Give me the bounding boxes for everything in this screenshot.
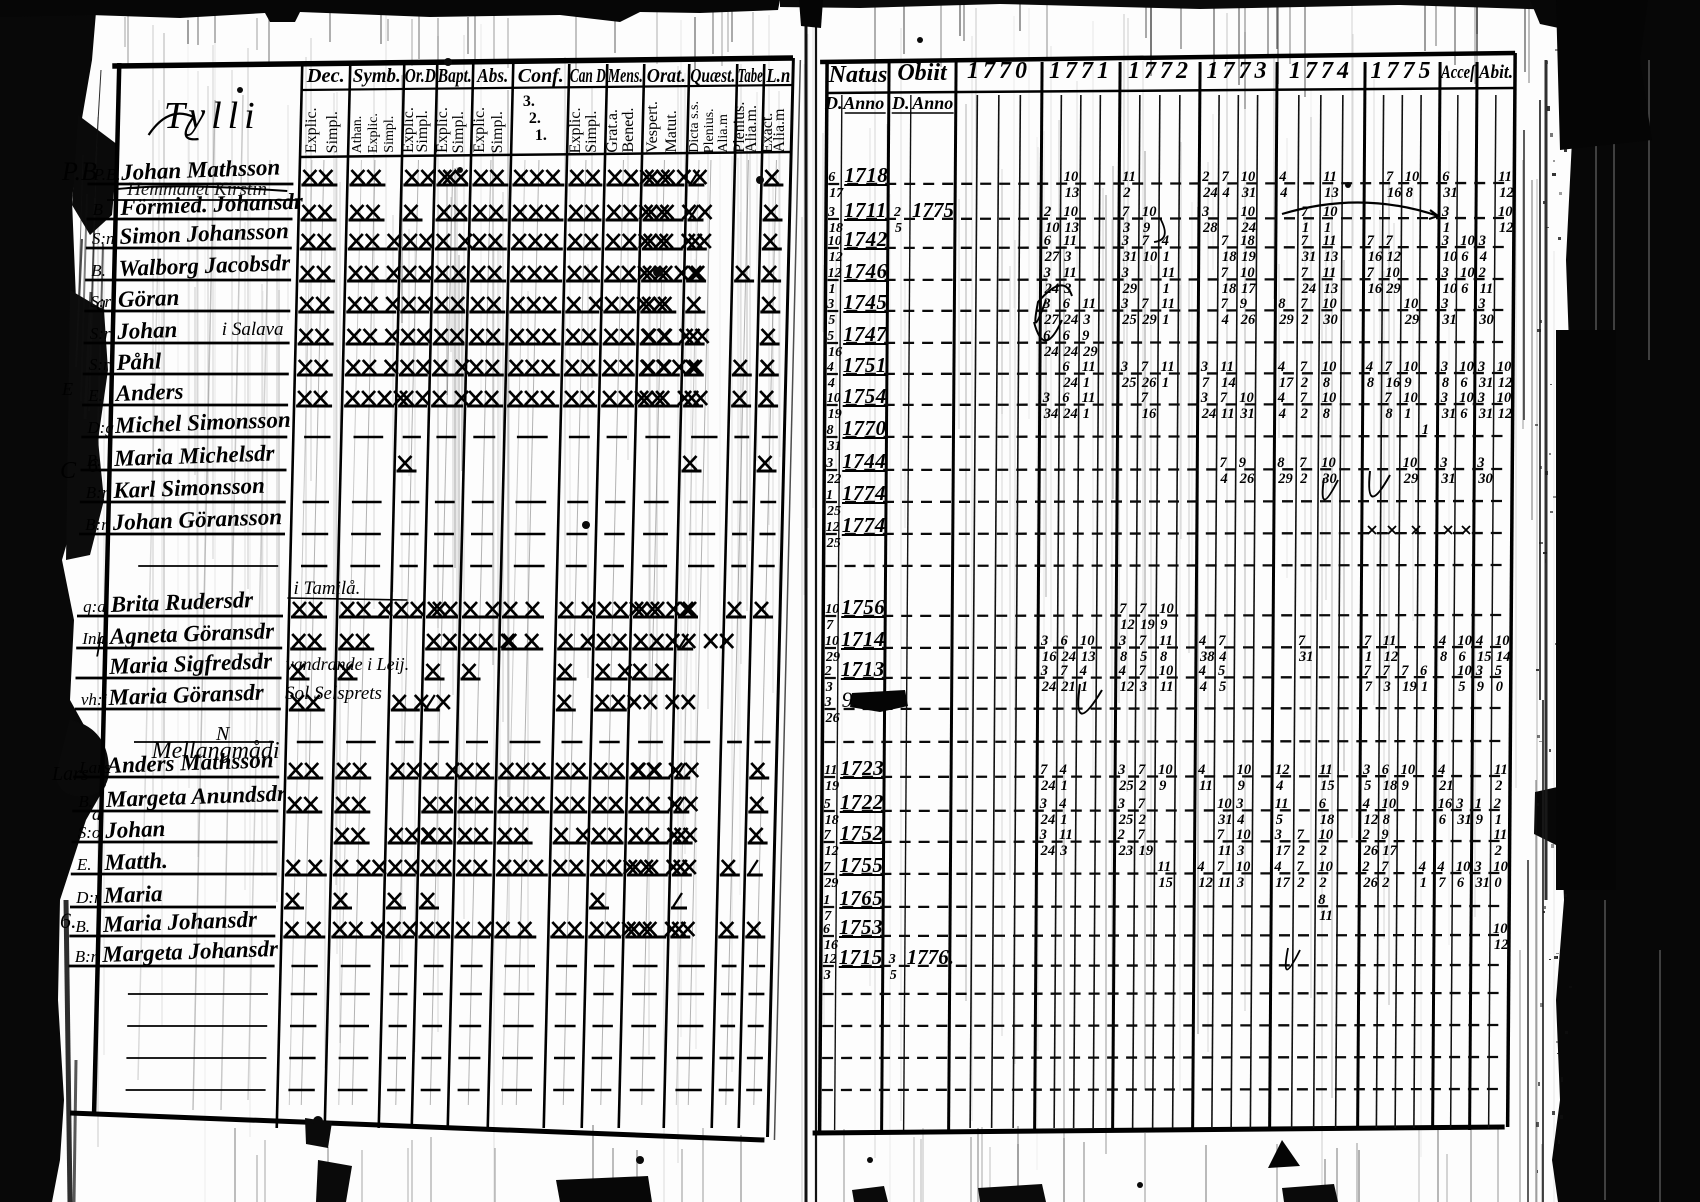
svg-text:Dec.: Dec. [306,65,345,87]
svg-text:15: 15 [1158,875,1173,891]
svg-text:4: 4 [1059,762,1067,778]
svg-text:1: 1 [826,488,833,503]
svg-text:10: 10 [1495,633,1510,649]
svg-text:1: 1 [1061,778,1068,794]
svg-text:10: 10 [1460,265,1475,281]
svg-text:6: 6 [1062,359,1070,375]
svg-text:16: 16 [1368,281,1383,297]
svg-text:26: 26 [1141,375,1157,391]
svg-text:5: 5 [828,313,835,328]
svg-text:17: 17 [1275,875,1290,891]
svg-text:17: 17 [1241,281,1256,297]
svg-text:3: 3 [1475,663,1483,679]
svg-text:7: 7 [1220,455,1228,471]
svg-text:Matth.: Matth. [103,848,168,875]
svg-text:Acceſ: Acceſ [1440,62,1476,83]
svg-text:18: 18 [1383,778,1398,794]
svg-text:1747: 1747 [843,322,888,346]
svg-text:7: 7 [1438,875,1446,891]
svg-text:3: 3 [1235,796,1243,812]
svg-text:1: 1 [1421,679,1428,695]
svg-text:7: 7 [1141,359,1149,375]
svg-text:9: 9 [1404,375,1411,391]
svg-text:16: 16 [1368,249,1383,265]
svg-text:17: 17 [1279,375,1294,391]
svg-text:3: 3 [1039,827,1047,843]
svg-text:16: 16 [1438,796,1453,812]
svg-text:Anno: Anno [842,93,884,113]
svg-text:12: 12 [1120,679,1135,695]
svg-text:27: 27 [1043,312,1059,328]
svg-text:11: 11 [1199,778,1213,794]
svg-text:1770: 1770 [967,58,1031,84]
svg-text:B: B [93,200,104,219]
svg-text:5: 5 [1495,663,1502,679]
svg-text:11: 11 [1275,796,1289,812]
svg-text:Simpl.: Simpl. [324,111,341,153]
svg-text:3: 3 [1118,633,1126,649]
svg-text:3: 3 [1040,633,1048,649]
svg-text:10: 10 [1236,859,1251,875]
svg-text:Athan.: Athan. [350,116,365,154]
svg-text:11: 11 [1063,265,1077,281]
svg-text:8: 8 [1367,375,1375,391]
svg-text:27: 27 [1044,249,1060,265]
svg-text:9: 9 [1381,827,1388,843]
svg-text:D:r: D:r [75,888,101,907]
svg-text:6.: 6. [88,455,103,477]
svg-text:4: 4 [1365,359,1373,375]
svg-text:4: 4 [1273,859,1281,875]
svg-text:6: 6 [1460,375,1468,391]
svg-text:19: 19 [825,779,839,794]
svg-text:2: 2 [1297,843,1305,859]
svg-text:16: 16 [828,345,842,360]
svg-text:9: 9 [1402,778,1409,794]
svg-text:11: 11 [1218,875,1232,891]
svg-text:Johan: Johan [104,816,166,843]
svg-text:29: 29 [1385,281,1401,297]
svg-text:7: 7 [1119,601,1127,617]
svg-text:17: 17 [1382,843,1397,859]
svg-text:N: N [215,723,231,745]
svg-text:11: 11 [1383,633,1397,649]
svg-text:18: 18 [1320,812,1335,828]
svg-text:29: 29 [1082,344,1098,360]
svg-text:i Salava: i Salava [222,319,284,340]
svg-text:11: 11 [1218,843,1232,859]
svg-text:2: 2 [1362,827,1370,843]
svg-text:7: 7 [1060,663,1068,679]
svg-text:15: 15 [1320,778,1335,794]
svg-text:10: 10 [1493,921,1508,937]
svg-text:3: 3 [1441,233,1449,249]
svg-text:3: 3 [1063,249,1071,265]
svg-text:B:n: B:n [75,947,100,966]
svg-text:26: 26 [1240,312,1256,328]
svg-text:1744: 1744 [842,449,886,473]
svg-text:10: 10 [1403,359,1418,375]
svg-text:8: 8 [1278,296,1286,312]
svg-text:17: 17 [829,186,844,201]
svg-text:B:r: B:r [85,515,108,534]
svg-text:Alia.m: Alia.m [716,114,731,153]
svg-text:10: 10 [1458,633,1473,649]
svg-text:10: 10 [1322,359,1337,375]
svg-text:10: 10 [1401,762,1416,778]
svg-text:1775: 1775 [1371,58,1435,84]
svg-text:29: 29 [1122,281,1138,297]
svg-text:Alia.m.: Alia.m. [743,105,760,153]
svg-text:4: 4 [1058,796,1066,812]
svg-text:7: 7 [1220,390,1228,406]
svg-text:Explic.: Explic. [434,107,451,153]
svg-text:16: 16 [824,938,838,953]
svg-text:29: 29 [1277,471,1293,487]
svg-text:6: 6 [1457,875,1465,891]
svg-text:24: 24 [1062,406,1078,422]
svg-text:7: 7 [1138,762,1146,778]
svg-text:24: 24 [1041,679,1057,695]
svg-text:7: 7 [1217,827,1225,843]
svg-text:1: 1 [1495,812,1502,828]
svg-text:2: 2 [1478,265,1486,281]
svg-text:7: 7 [1301,233,1309,249]
svg-text:7: 7 [1301,204,1309,220]
svg-text:10: 10 [1404,296,1419,312]
svg-text:S:r: S:r [90,324,111,343]
svg-text:Simpl.: Simpl. [382,116,397,153]
svg-text:3: 3 [1082,312,1090,328]
svg-text:11: 11 [1498,169,1512,185]
svg-text:3: 3 [1440,359,1448,375]
svg-text:25: 25 [1121,312,1137,328]
svg-text:1: 1 [1163,281,1170,297]
svg-text:3: 3 [1039,796,1047,812]
svg-text:30: 30 [1322,312,1338,328]
svg-text:3: 3 [1120,296,1128,312]
svg-text:12: 12 [1498,406,1513,422]
svg-text:1: 1 [829,282,836,297]
svg-text:3: 3 [1476,455,1484,471]
svg-text:Lars: Lars [51,763,89,785]
svg-text:7: 7 [1299,455,1307,471]
svg-text:Natus: Natus [828,62,888,88]
svg-text:Anders: Anders [113,379,184,406]
svg-text:3: 3 [1473,859,1481,875]
svg-text:Plenius.: Plenius. [702,108,717,153]
svg-text:8: 8 [1277,455,1285,471]
svg-text:12: 12 [826,520,840,535]
svg-text:24: 24 [1040,843,1056,859]
svg-text:18: 18 [825,813,839,828]
svg-text:29: 29 [1278,312,1294,328]
svg-text:31: 31 [1478,406,1494,422]
svg-text:31: 31 [1441,312,1457,328]
svg-text:24: 24 [1040,812,1056,828]
svg-text:19: 19 [1402,679,1417,695]
svg-text:11: 11 [1161,359,1175,375]
svg-text:2: 2 [1318,875,1326,891]
svg-text:13: 13 [1324,249,1339,265]
svg-text:16: 16 [1142,406,1157,422]
svg-text:10: 10 [1321,455,1336,471]
svg-text:23: 23 [1118,843,1134,859]
svg-text:3: 3 [1043,265,1051,281]
svg-text:12: 12 [825,844,839,859]
svg-text:24: 24 [1301,281,1317,297]
svg-text:D:g: D:g [86,418,113,437]
svg-text:7: 7 [1300,390,1308,406]
svg-text:3: 3 [1477,296,1485,312]
svg-text:10: 10 [1323,204,1338,220]
svg-text:1773: 1773 [1207,58,1271,84]
svg-text:Grat.a.: Grat.a. [604,109,621,153]
svg-text:11: 11 [1082,296,1096,312]
svg-text:5: 5 [1276,812,1283,828]
svg-text:4: 4 [1277,390,1285,406]
svg-text:1745: 1745 [843,290,887,314]
svg-text:E: E [61,379,73,399]
svg-text:1: 1 [823,893,830,908]
svg-text:6: 6 [1063,296,1071,312]
svg-text:1770: 1770 [843,416,887,440]
svg-text:12: 12 [823,952,837,967]
svg-text:7: 7 [1386,169,1394,185]
svg-text:4: 4 [827,376,835,391]
svg-text:25: 25 [826,536,841,551]
svg-text:29: 29 [825,650,840,665]
svg-text:7: 7 [1142,233,1150,249]
svg-text:2: 2 [1319,843,1327,859]
svg-text:Simpl.: Simpl. [489,111,506,153]
svg-text:3: 3 [1121,265,1129,281]
svg-text:5: 5 [824,797,831,812]
svg-text:4: 4 [1275,778,1283,794]
svg-text:1746: 1746 [844,259,888,283]
svg-text:31: 31 [1217,812,1233,828]
svg-text:31: 31 [1441,406,1457,422]
svg-text:3: 3 [1121,233,1129,249]
svg-text:28: 28 [1202,220,1218,236]
svg-text:10: 10 [1403,390,1418,406]
svg-text:12: 12 [829,250,843,265]
svg-text:1774: 1774 [1289,58,1353,84]
svg-text:7: 7 [1365,679,1373,695]
svg-text:3: 3 [1200,390,1208,406]
svg-text:2: 2 [1361,859,1369,875]
svg-text:1755: 1755 [839,853,883,877]
svg-text:3: 3 [1236,843,1244,859]
svg-text:12: 12 [1275,762,1290,778]
svg-text:3: 3 [825,680,833,695]
svg-text:31: 31 [1456,812,1472,828]
svg-text:24: 24 [1063,312,1079,328]
svg-text:1742: 1742 [844,227,888,251]
svg-text:1776.: 1776. [907,945,954,969]
svg-text:10: 10 [1239,390,1254,406]
svg-text:7: 7 [1383,663,1391,679]
svg-text:B.: B. [75,917,90,936]
svg-text:1714: 1714 [841,627,885,651]
svg-text:3: 3 [1236,875,1244,891]
svg-text:11: 11 [1480,281,1494,297]
svg-text:3: 3 [1477,359,1485,375]
svg-text:10: 10 [1080,633,1095,649]
svg-text:Quæst.: Quæst. [690,65,735,87]
svg-text:Simpl.: Simpl. [450,111,467,153]
svg-text:1: 1 [1083,406,1090,422]
svg-text:17: 17 [1276,843,1291,859]
svg-text:3: 3 [1439,455,1447,471]
svg-text:4: 4 [1277,359,1285,375]
svg-text:10: 10 [1493,859,1508,875]
svg-text:6: 6 [1062,390,1070,406]
svg-text:12: 12 [1499,185,1514,201]
svg-text:Explic.: Explic. [303,107,320,153]
svg-text:12: 12 [1120,617,1135,633]
svg-text:10: 10 [1143,249,1158,265]
svg-text:8: 8 [1323,406,1331,422]
svg-text:25: 25 [1118,812,1134,828]
svg-text:Tylli: Tylli [164,95,261,137]
svg-text:3: 3 [1117,796,1125,812]
svg-text:7: 7 [1138,827,1146,843]
svg-text:16: 16 [1386,375,1401,391]
svg-text:Orat.: Orat. [647,65,686,87]
svg-text:Obiit: Obiit [897,60,948,86]
svg-text:30: 30 [1477,471,1493,487]
svg-text:1765: 1765 [839,886,883,910]
svg-text:Vespert.: Vespert. [644,101,661,153]
svg-text:10: 10 [1159,601,1174,617]
svg-text:9: 9 [1240,296,1247,312]
svg-text:7: 7 [1385,359,1393,375]
svg-text:3: 3 [1201,204,1209,220]
svg-text:9: 9 [1082,328,1089,344]
svg-text:6: 6 [1442,169,1450,185]
svg-text:Mens.: Mens. [607,65,643,87]
svg-text:2: 2 [1493,796,1501,812]
svg-text:1: 1 [1475,796,1482,812]
svg-text:11: 11 [1122,169,1136,185]
svg-text:2: 2 [1300,375,1308,391]
svg-text:1: 1 [1083,375,1090,391]
svg-text:4: 4 [826,360,834,375]
svg-text:10: 10 [1237,762,1252,778]
svg-text:2: 2 [1494,843,1502,859]
svg-text:18: 18 [1222,281,1237,297]
svg-text:7: 7 [1367,265,1375,281]
svg-text:8: 8 [1383,812,1391,828]
svg-text:6.: 6. [60,908,77,933]
svg-text:Abit.: Abit. [1478,62,1513,83]
svg-text:1711: 1711 [844,198,887,222]
svg-text:3: 3 [825,456,833,471]
svg-text:2: 2 [893,205,901,220]
svg-text:10: 10 [1240,265,1255,281]
svg-text:10: 10 [1456,859,1471,875]
svg-text:6: 6 [1439,812,1447,828]
svg-text:10: 10 [1443,249,1458,265]
svg-text:6: 6 [1043,328,1051,344]
svg-text:7: 7 [1122,204,1130,220]
svg-text:1715: 1715 [839,945,883,969]
svg-text:11: 11 [1323,169,1337,185]
svg-text:1: 1 [1081,679,1088,695]
svg-text:1: 1 [1060,812,1067,828]
svg-text:4: 4 [1436,859,1444,875]
svg-text:1.: 1. [535,127,547,144]
svg-text:26: 26 [1239,471,1255,487]
svg-text:Alia.m: Alia.m [771,108,788,153]
svg-text:6: 6 [1319,796,1327,812]
svg-text:10: 10 [825,634,839,649]
svg-text:6: 6 [828,170,835,185]
svg-text:4: 4 [1220,471,1228,487]
svg-text:3: 3 [1440,390,1448,406]
svg-text:4: 4 [1221,312,1229,328]
svg-text:10: 10 [1322,296,1337,312]
svg-text:11: 11 [1059,827,1073,843]
svg-text:Abs.: Abs. [476,65,509,87]
svg-text:11: 11 [824,763,837,778]
svg-text:1752: 1752 [840,821,884,845]
svg-text:C: C [60,458,77,484]
svg-text:10: 10 [1460,233,1475,249]
svg-text:7: 7 [1301,265,1309,281]
svg-text:3: 3 [823,968,831,983]
svg-text:31: 31 [827,439,842,454]
svg-text:4: 4 [1437,762,1445,778]
svg-text:7: 7 [1221,265,1229,281]
svg-text:7: 7 [1401,663,1409,679]
svg-text:24: 24 [1062,375,1078,391]
svg-text:25: 25 [1121,375,1137,391]
svg-text:4: 4 [1278,406,1286,422]
svg-text:4: 4 [1362,796,1370,812]
svg-text:0: 0 [1496,679,1503,695]
svg-text:22: 22 [826,472,841,487]
svg-text:7: 7 [1297,827,1305,843]
svg-text:1722: 1722 [840,790,884,814]
svg-text:10: 10 [1497,390,1512,406]
svg-text:0: 0 [1494,875,1501,891]
svg-text:Can D: Can D [570,65,606,87]
svg-text:a: a [92,804,101,824]
svg-text:11: 11 [1220,359,1234,375]
svg-text:4: 4 [1118,663,1126,679]
svg-text:5: 5 [895,221,902,236]
svg-text:1: 1 [1420,875,1427,891]
svg-text:1774: 1774 [842,481,886,505]
svg-text:10: 10 [1457,663,1472,679]
svg-text:6: 6 [1044,233,1052,249]
svg-text:2: 2 [1300,312,1308,328]
svg-text:5: 5 [1219,679,1226,695]
svg-text:5: 5 [1458,679,1465,695]
svg-text:18: 18 [1240,233,1255,249]
svg-text:11: 11 [1319,908,1333,924]
svg-text:4: 4 [1198,633,1206,649]
svg-text:3: 3 [1440,296,1448,312]
svg-text:Anno: Anno [911,93,953,113]
svg-text:11: 11 [1162,265,1176,281]
svg-text:1753: 1753 [839,915,883,939]
svg-text:11: 11 [1323,265,1337,281]
svg-text:26: 26 [825,711,840,726]
svg-text:7: 7 [1139,633,1147,649]
